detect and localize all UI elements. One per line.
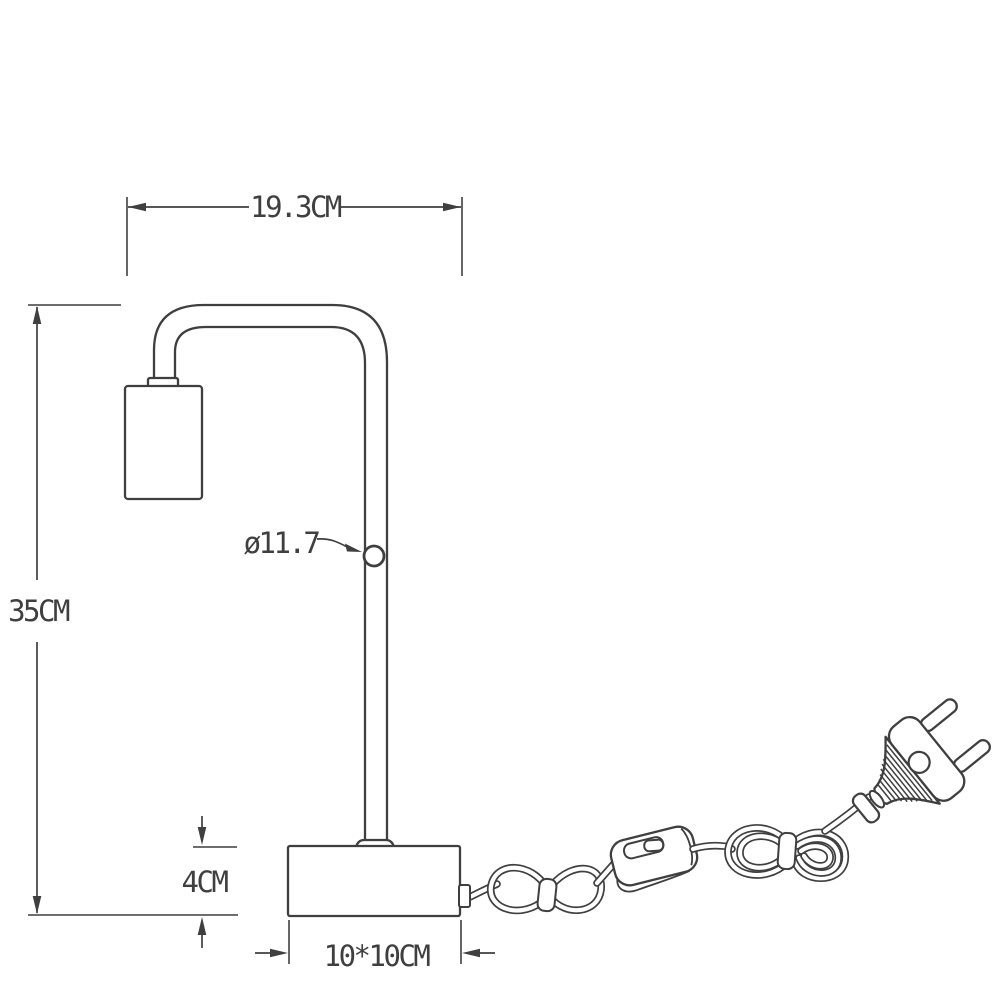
dimension-base-size: 10*10CM <box>255 920 495 973</box>
arrowhead <box>443 203 461 212</box>
arrowhead <box>270 949 288 957</box>
wrap-band <box>537 878 557 912</box>
lamp-head <box>125 386 202 499</box>
cord-switch <box>608 824 702 895</box>
arrowhead <box>33 896 42 914</box>
cord-coil <box>728 797 869 878</box>
technical-drawing-lamp: 19.3CM 35CM 4CM 10*10CM ø11.7 <box>0 0 1000 1000</box>
width-dimension-label: 19.3CM <box>250 190 342 224</box>
drawing-canvas: 19.3CM 35CM 4CM 10*10CM ø11.7 <box>0 0 1000 1000</box>
switch-body <box>608 824 701 889</box>
diameter-callout: ø11.7 <box>244 526 362 560</box>
wrap-band <box>777 832 796 869</box>
base-height-label: 4CM <box>182 865 229 899</box>
arrowhead <box>462 949 480 957</box>
lamp-fixture <box>125 305 460 916</box>
arrowhead <box>198 917 207 935</box>
cord-outlet-stub <box>459 885 470 907</box>
cord-knot-1 <box>491 858 619 912</box>
power-plug <box>832 687 1000 848</box>
cord-loop <box>740 836 783 868</box>
coil-wrap-band <box>777 832 796 869</box>
arrowhead <box>198 827 207 845</box>
lamp-base <box>288 846 460 916</box>
dimension-height: 35CM <box>8 305 238 915</box>
arrowhead <box>33 306 42 324</box>
base-size-label: 10*10CM <box>324 939 431 973</box>
height-dimension-label: 35CM <box>8 594 70 628</box>
arrowhead <box>128 203 146 212</box>
dimension-width: 19.3CM <box>127 190 462 276</box>
knot-wrap-band <box>537 878 557 912</box>
pole-joint <box>364 546 384 566</box>
lamp-arm-inner <box>175 327 365 841</box>
arrowhead <box>345 544 362 553</box>
pole-diameter-label: ø11.7 <box>244 526 320 560</box>
power-cord <box>459 687 1000 912</box>
dimension-base-height: 4CM <box>182 816 237 948</box>
leader-line <box>317 539 349 548</box>
